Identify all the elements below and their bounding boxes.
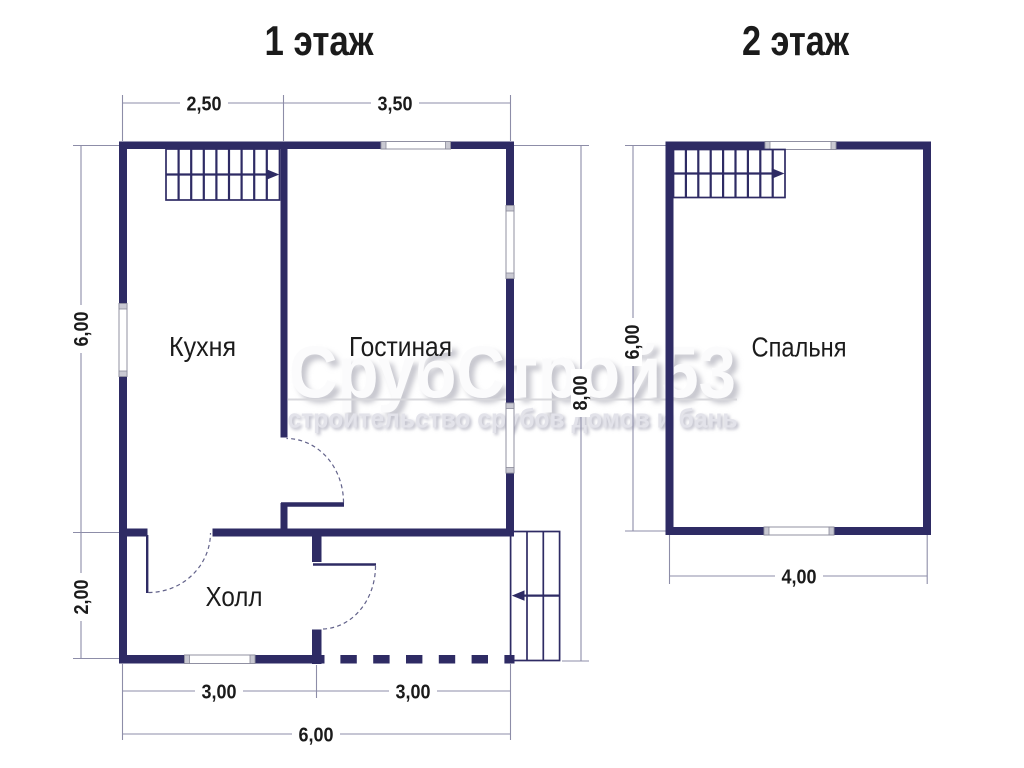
svg-text:6,00: 6,00 [622, 325, 644, 360]
svg-text:Спальня: Спальня [752, 332, 847, 363]
svg-text:2,00: 2,00 [71, 580, 93, 615]
svg-text:8,00: 8,00 [570, 376, 592, 411]
svg-text:1 этаж: 1 этаж [265, 17, 375, 64]
svg-text:Холл: Холл [206, 581, 263, 612]
svg-text:3,00: 3,00 [202, 682, 237, 704]
svg-text:3,50: 3,50 [378, 94, 413, 116]
svg-text:6,00: 6,00 [299, 725, 334, 747]
svg-text:4,00: 4,00 [782, 567, 817, 589]
svg-text:2,50: 2,50 [187, 94, 222, 116]
svg-text:3,00: 3,00 [396, 682, 431, 704]
svg-text:Кухня: Кухня [169, 331, 236, 362]
svg-text:Гостиная: Гостиная [349, 331, 452, 362]
svg-text:6,00: 6,00 [71, 312, 93, 347]
svg-text:2 этаж: 2 этаж [742, 17, 850, 64]
